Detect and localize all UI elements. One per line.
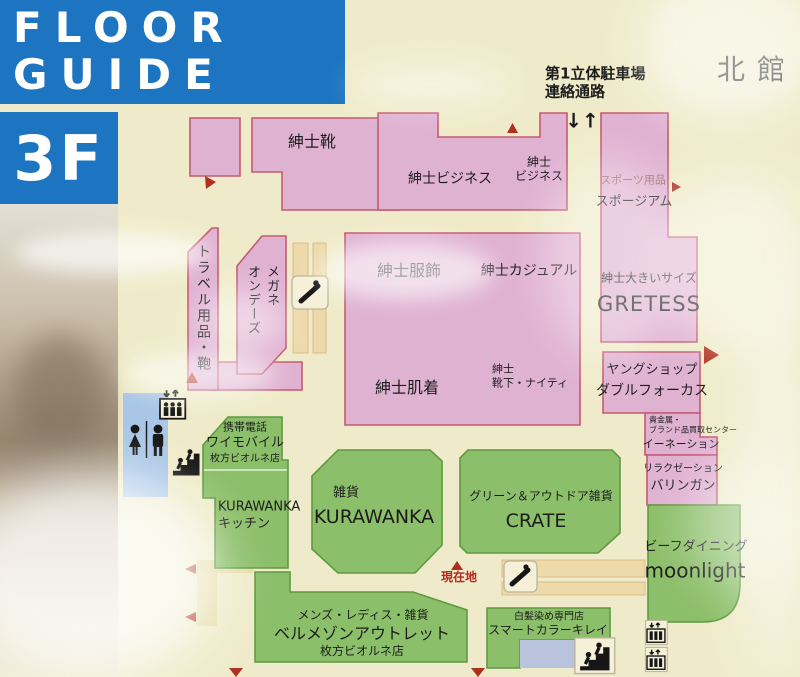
label-haircolor-line1: 白髪染め専門店 [514, 611, 584, 623]
label-gretess: GRETESS [597, 292, 701, 316]
parking-note-line2: 連絡通路 [545, 83, 605, 100]
label-young-line2: ダブルフォーカス [596, 383, 708, 399]
escalator-icon [504, 561, 537, 592]
label-mens-casual: 紳士カジュアル [481, 263, 578, 279]
label-buyback-line3: イーネーション [643, 439, 720, 452]
label-megane-line2: オンデーズ [243, 265, 262, 335]
area-unlabeled-pink [190, 118, 240, 176]
stairs-icon [173, 449, 200, 475]
label-zakka-line1: 雑貨 [333, 487, 359, 502]
stairs-icon [575, 638, 615, 674]
label-young-line1: ヤングショップ [606, 364, 697, 379]
label-crate-line1: グリーン＆アウトドア雑貨 [469, 490, 612, 504]
label-kitchen-line1: KURAWANKA [218, 501, 300, 516]
map-marker-triangle [229, 668, 243, 677]
label-crate: CRATE [506, 511, 567, 533]
label-buyback-line1: 貴金属・ [649, 415, 681, 424]
label-sports-line1: スポーツ用品 [600, 175, 666, 188]
label-sports-line2: スポージアム [596, 196, 673, 211]
label-mens-business2-line2: ビジネス [515, 170, 563, 184]
label-outlet-line2: ベルメゾンアウトレット [274, 625, 450, 643]
building-name: 北館 [717, 54, 797, 86]
floor-guide-sign: FLOOR GUIDE 3F 北館 第1立体駐車場 連絡通路 ↓↑ 紳士靴 紳士… [0, 0, 800, 677]
label-outlet-line3: 枚方ビオルネ店 [320, 645, 404, 659]
escalator-icon [292, 276, 328, 309]
label-haircolor-line2: スマートカラーキレイ [488, 624, 608, 638]
map-marker-triangle [507, 123, 518, 133]
label-kitchen-line2: キッチン [218, 518, 270, 533]
elevator-icon [645, 620, 667, 644]
floor-number-badge: 3F [0, 112, 118, 204]
floor-guide-header: FLOOR GUIDE [0, 0, 345, 104]
label-relax-line1: リラクゼーション [643, 463, 723, 475]
map-marker-triangle [672, 182, 681, 192]
label-mens-socks-line1: 紳士 [492, 364, 514, 377]
label-relax-line2: バリンガン [650, 480, 715, 495]
label-mobile-line3: 枚方ビオルネ店 [210, 453, 280, 465]
map-marker-triangle [185, 612, 196, 622]
map-marker-triangle [185, 564, 196, 574]
header-title-line2: GUIDE [13, 54, 226, 96]
map-marker-triangle [704, 346, 719, 364]
label-travel-goods: トラベル用品・鞄 [195, 244, 211, 372]
label-mens-shoes: 紳士靴 [288, 133, 336, 151]
label-mens-business: 紳士ビジネス [408, 171, 492, 187]
label-mens-underwear: 紳士肌着 [375, 379, 439, 397]
label-zakka-kurawanka: KURAWANKA [314, 507, 434, 529]
label-outlet-line1: メンズ・レディス・雑貨 [298, 609, 429, 623]
label-mens-business2-line1: 紳士 [527, 156, 551, 170]
label-megane-line1: メガネ [262, 265, 281, 335]
header-title-line1: FLOOR [13, 7, 236, 49]
elevator-icon [160, 390, 185, 419]
label-megane: メガネ オンデーズ [243, 265, 281, 335]
map-marker-triangle [471, 668, 485, 677]
label-mobile-line1: 携帯電話 [223, 422, 267, 435]
current-location-label: 現在地 [441, 571, 477, 585]
parking-note-line1: 第1立体駐車場 [545, 65, 645, 82]
label-mens-fashion: 紳士服飾 [377, 262, 441, 280]
map-marker-triangle [205, 176, 216, 189]
label-moonlight: moonlight [645, 560, 746, 583]
label-buyback-line2: ブランド品買取センター [649, 425, 737, 434]
label-mens-socks-line2: 靴下・ナイティ [492, 378, 568, 391]
elevator-icon [645, 647, 667, 671]
current-location-triangle [451, 561, 463, 570]
label-dining-line1: ビーフダイニング [644, 541, 747, 556]
label-bigsize-line1: 紳士大きいサイズ [601, 272, 697, 286]
updown-arrows: ↓↑ [565, 110, 599, 133]
label-mobile-line2: ワイモバイル [206, 437, 284, 452]
area-lavender-block [520, 640, 583, 668]
